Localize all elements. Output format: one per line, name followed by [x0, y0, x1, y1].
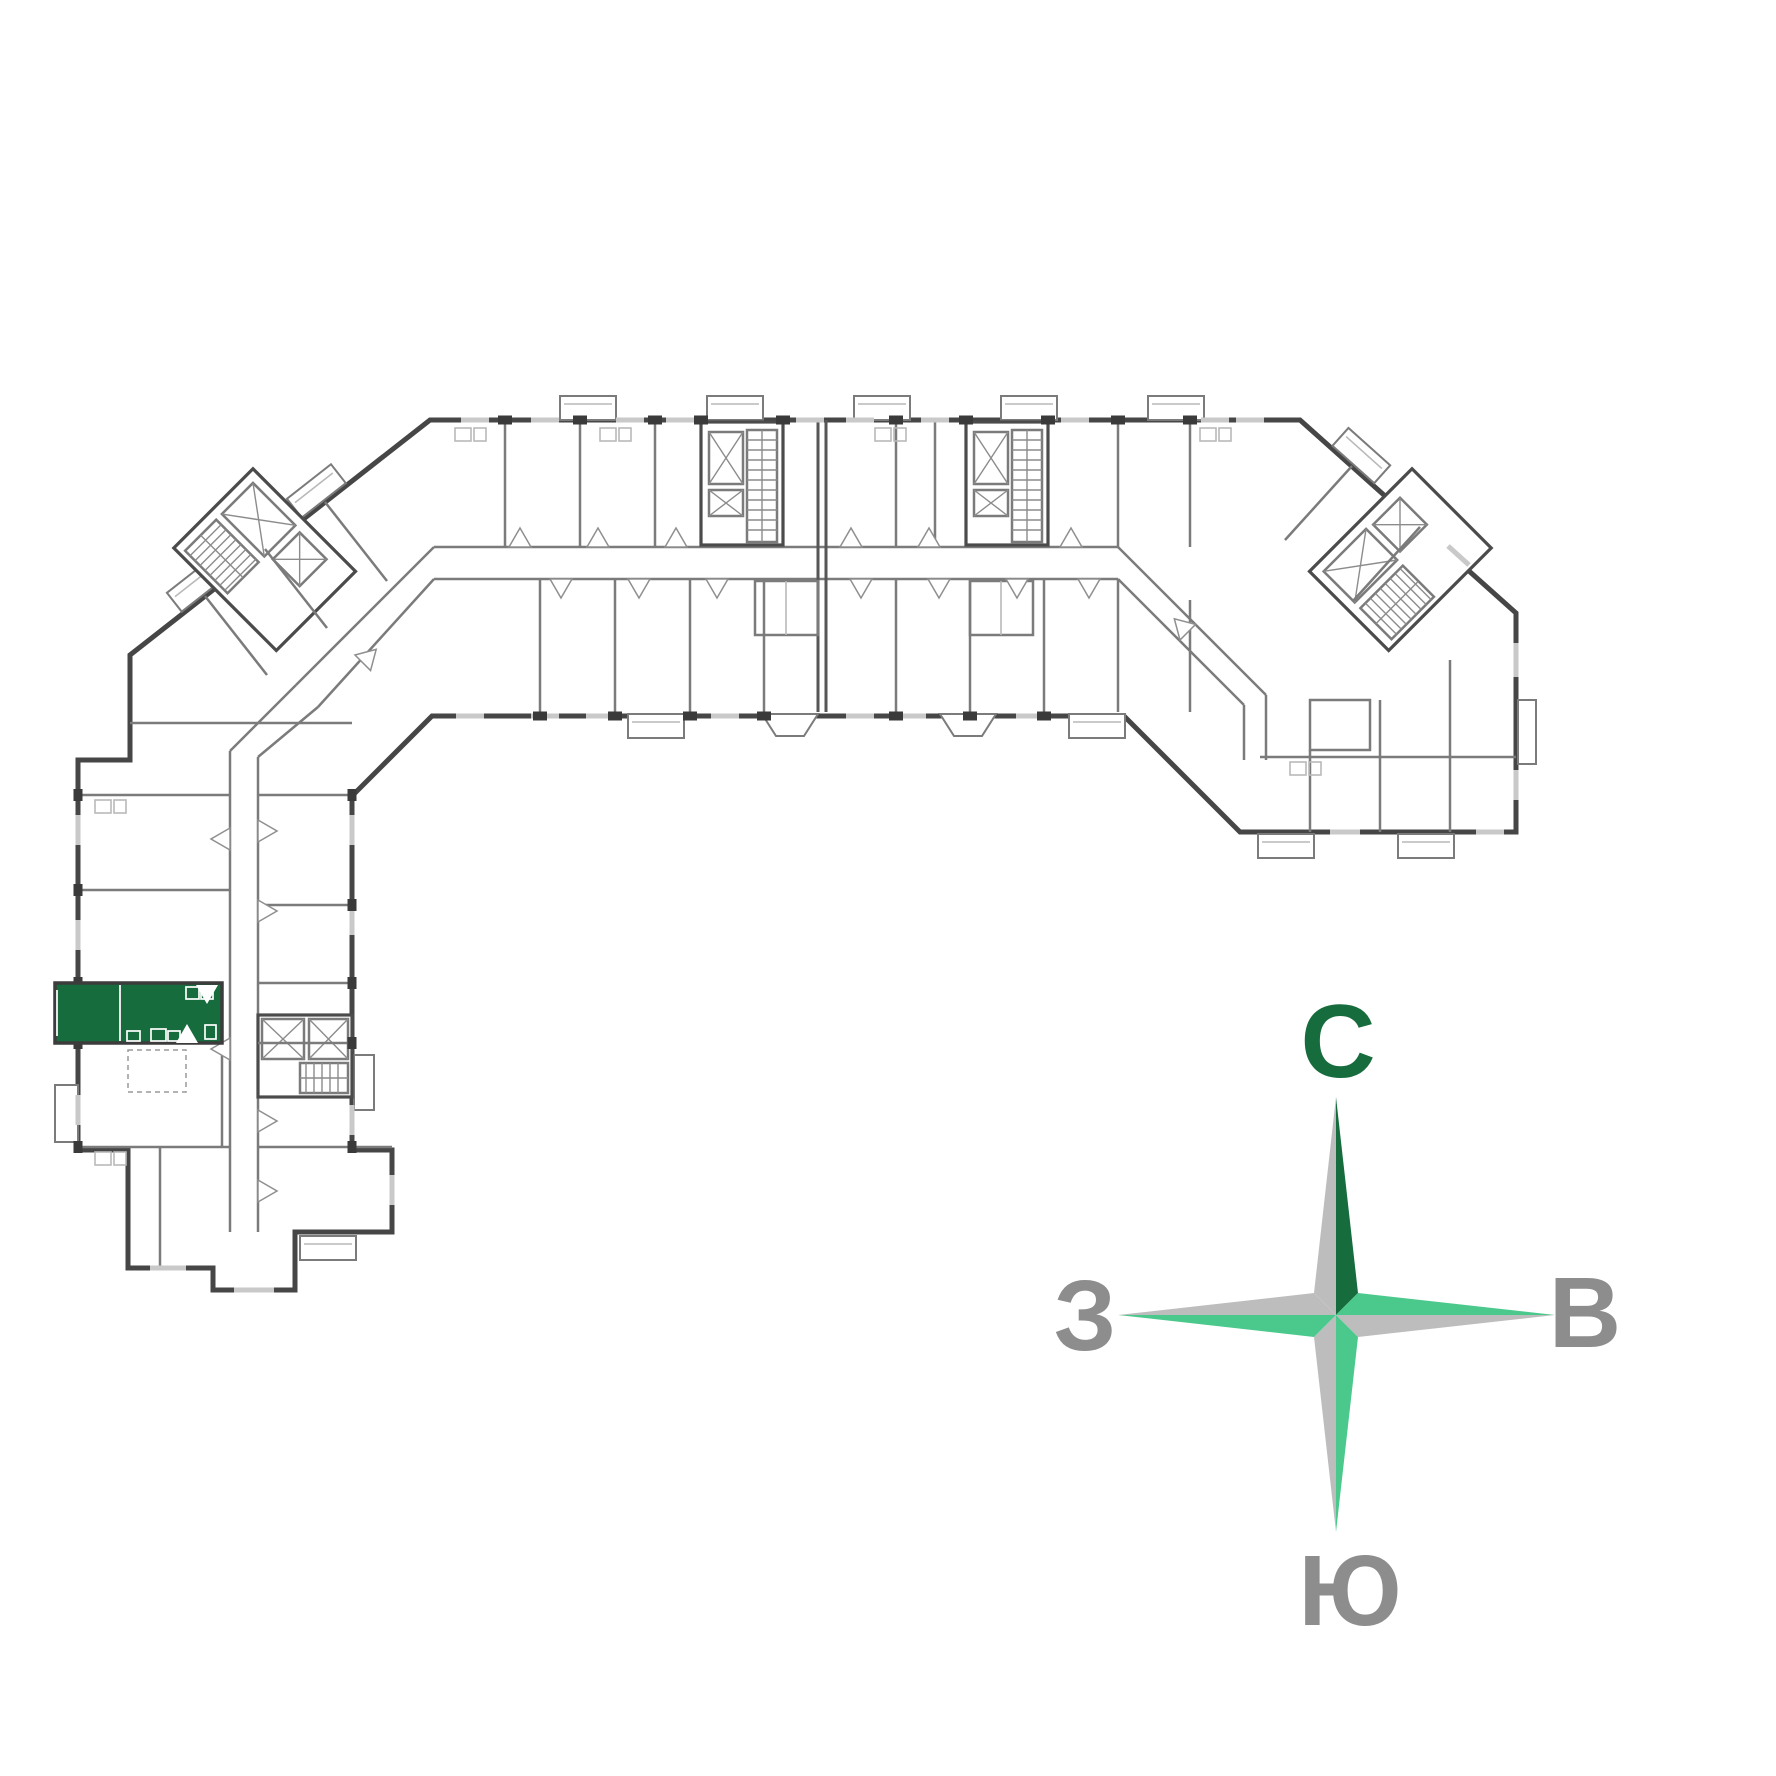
- compass-star: [1118, 1097, 1555, 1532]
- compass-label-west: З: [1054, 1260, 1117, 1372]
- building-plan: [55, 396, 1536, 1290]
- compass-label-north: С: [1300, 984, 1375, 1100]
- stair-elevator-core-band-left: [701, 422, 783, 545]
- highlighted-apartment-area[interactable]: [55, 983, 222, 1043]
- compass-label-east: В: [1549, 1257, 1621, 1369]
- compass-rose: С З В Ю: [1054, 984, 1621, 1647]
- floor-plan-canvas: С З В Ю: [0, 0, 1776, 1776]
- stair-elevator-core-band-right: [966, 422, 1048, 545]
- highlighted-apartment[interactable]: [55, 983, 222, 1043]
- stair-elevator-core-left-wing: [258, 1015, 352, 1097]
- compass-label-south: Ю: [1298, 1535, 1401, 1647]
